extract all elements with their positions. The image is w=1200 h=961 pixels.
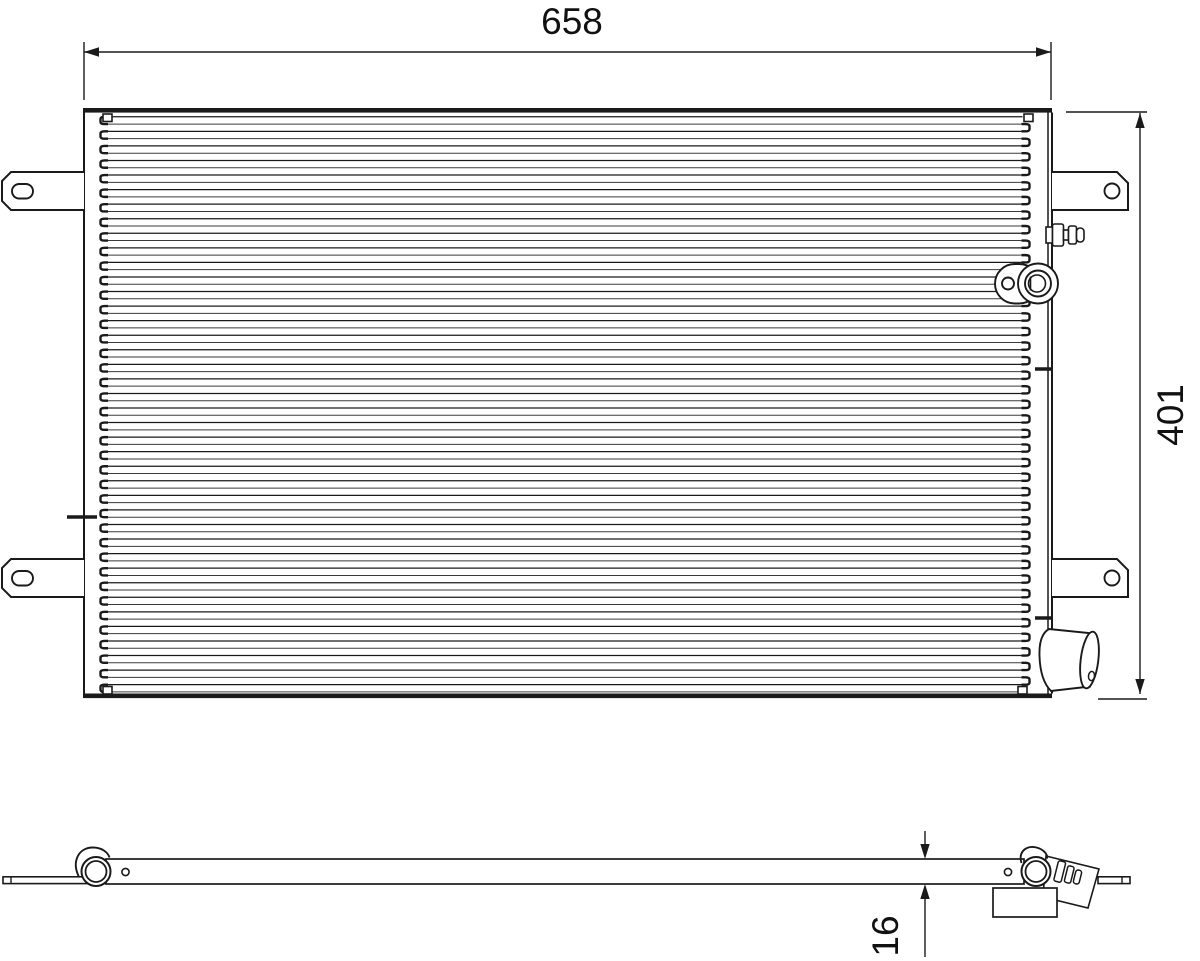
arrowhead-left xyxy=(84,47,99,56)
tube-end-cap xyxy=(1018,687,1027,695)
drawing-page: 658 401 xyxy=(0,0,1200,961)
side-ring-left-inner xyxy=(86,861,107,882)
arrowhead-down xyxy=(920,844,929,859)
arrowhead-down xyxy=(1135,679,1144,694)
mounting-bracket-left-bottom xyxy=(2,559,84,597)
arrowhead-right xyxy=(1036,47,1051,56)
bottom-plate xyxy=(84,694,1052,699)
mounting-bracket-left-top xyxy=(2,172,84,210)
arrowhead-up xyxy=(1135,113,1144,128)
mounting-bracket-right-top xyxy=(1052,172,1128,210)
dim-height-label: 401 xyxy=(1150,384,1191,446)
outlet-pipe-fitting xyxy=(1039,629,1101,691)
mounting-bracket-right-bottom xyxy=(1052,559,1128,597)
side-ring-right-inner xyxy=(1026,861,1047,882)
side-bracket-tab-right xyxy=(1098,877,1130,884)
tube-end-cap xyxy=(103,687,112,695)
tube-loops-left xyxy=(101,117,109,692)
side-bottom-block xyxy=(993,888,1057,917)
side-view: 16 xyxy=(3,831,1130,957)
bracket-slot-hole xyxy=(12,571,33,586)
bracket-round-hole xyxy=(1105,184,1120,199)
core-profile-bar xyxy=(106,859,1024,884)
tube-end-cap xyxy=(103,114,112,122)
front-view: 658 401 xyxy=(2,1,1191,699)
condenser-technical-drawing: 658 401 xyxy=(0,0,1200,961)
side-bracket-tab-left xyxy=(3,877,88,884)
top-plate xyxy=(84,108,1052,113)
thickness-dimension xyxy=(920,831,929,957)
side-hole-left xyxy=(122,868,129,875)
tube-loops-right xyxy=(1022,124,1030,685)
dim-thickness-label: 16 xyxy=(865,915,906,956)
pipe-face-hole xyxy=(1088,671,1095,681)
bracket-slot-hole xyxy=(12,184,33,199)
arrowhead-up xyxy=(920,884,929,899)
side-hole-right xyxy=(1004,868,1011,875)
width-dimension xyxy=(84,42,1051,100)
bracket-round-hole xyxy=(1105,571,1120,586)
pipe-port-fitting xyxy=(995,264,1058,304)
tube-end-cap xyxy=(1024,114,1033,122)
flange-hole xyxy=(1002,278,1014,290)
service-valve-fitting xyxy=(1046,224,1084,246)
dim-width-label: 658 xyxy=(541,1,603,42)
core-fins xyxy=(107,117,1023,692)
